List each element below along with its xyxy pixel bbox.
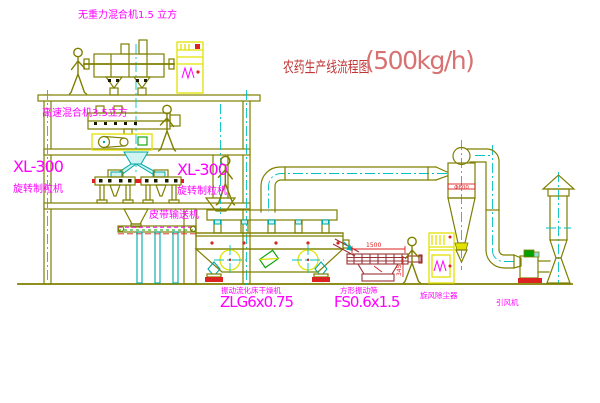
control-cabinet-ground [429, 233, 454, 283]
label-gravity-mixer: 无重力混合机1.5 立方 [78, 11, 177, 21]
label-granulator-right-name: 旋转制粒机 [177, 187, 227, 197]
cyclone-separator: Φ600 [448, 148, 475, 263]
label-dryer-model: ZLG6x0.75 [220, 295, 293, 310]
cyclone-discharge [455, 243, 468, 250]
building-structure [18, 95, 572, 284]
cabinet-marking [434, 261, 446, 271]
diagram-title-capacity: (500kg/h) [365, 46, 473, 75]
label-induced-draft-fan: 引风机 [496, 299, 519, 307]
label-cyclone: 旋风除尘器 [420, 292, 458, 300]
cabinet-marking [182, 68, 194, 78]
drive-motor [260, 250, 279, 267]
worker-second-floor [159, 105, 176, 151]
control-cabinet-top [177, 42, 203, 93]
label-sieve-model: FS0.6x1.5 [334, 295, 399, 310]
flow-diagram-canvas: 1500 345 Φ600 [0, 0, 600, 403]
label-high-speed-mixer: 高速混合机3.5立方 [42, 109, 128, 119]
dryer-springs [214, 220, 329, 233]
dim-345: 345 [396, 264, 403, 276]
gravity-free-mixer [84, 40, 174, 95]
splitter-chute [111, 152, 165, 177]
diagram-title: 农药生产线流程图 [283, 56, 369, 77]
induced-draft-fan [514, 250, 550, 283]
square-vibrating-sieve: 1500 345 [333, 239, 422, 281]
worker-roof [70, 48, 87, 94]
worker-ground [404, 237, 421, 283]
fan-base [518, 278, 542, 283]
label-granulator-left-model: XL-300 [13, 159, 63, 175]
fluid-bed-dryer [196, 210, 349, 282]
dim-phi600: Φ600 [454, 185, 469, 191]
fan-suction-pipe [467, 149, 514, 268]
label-granulator-right-model: XL-300 [177, 162, 227, 178]
indicator-red [195, 44, 200, 49]
dim-1500: 1500 [366, 242, 381, 249]
mixer-drive-box [92, 134, 152, 150]
label-granulator-left-name: 旋转制粒机 [13, 185, 63, 195]
label-belt-conveyor: 皮带输送机 [149, 211, 199, 221]
